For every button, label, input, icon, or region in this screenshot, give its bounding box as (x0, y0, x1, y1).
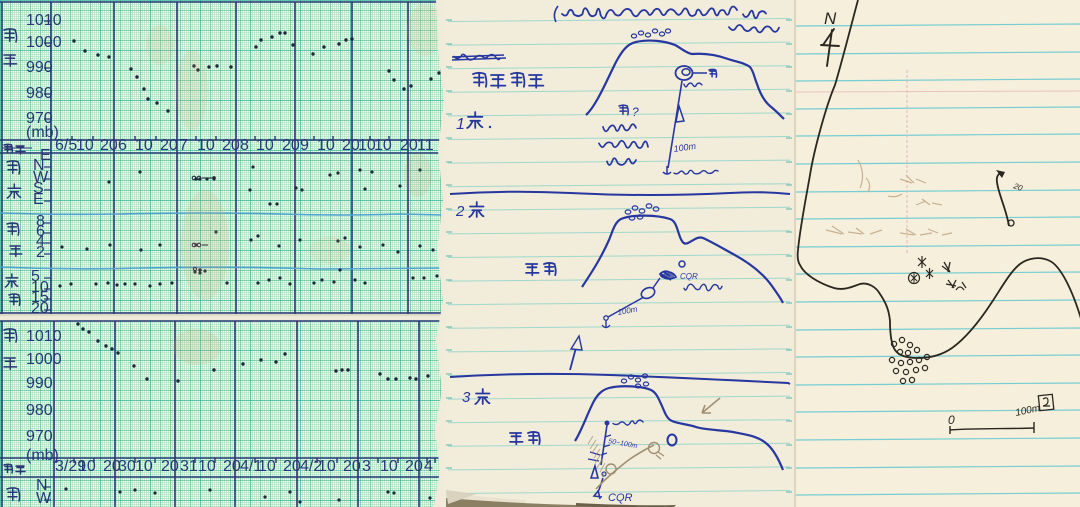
svg-text:20: 20 (343, 458, 361, 475)
svg-text:3: 3 (362, 458, 371, 475)
svg-text:(mb): (mb) (26, 124, 59, 141)
svg-text:10: 10 (198, 458, 216, 475)
svg-text:1010: 1010 (26, 328, 62, 345)
svg-text:10: 10 (318, 458, 336, 475)
svg-text:100m: 100m (673, 141, 697, 154)
svg-text:10: 10 (258, 458, 276, 475)
svg-text:10: 10 (380, 458, 398, 475)
svg-text:CQR: CQR (680, 272, 698, 281)
svg-text:E: E (33, 191, 44, 208)
svg-text:CQR: CQR (608, 492, 633, 504)
svg-text:980: 980 (26, 402, 53, 419)
svg-text:1000: 1000 (26, 351, 62, 368)
svg-text:10: 10 (135, 458, 153, 475)
svg-text:W: W (36, 490, 52, 507)
svg-text:6/5: 6/5 (55, 137, 77, 154)
svg-text:990: 990 (26, 375, 53, 392)
svg-text:20: 20 (222, 137, 240, 154)
svg-text:N: N (824, 9, 837, 28)
svg-text:9: 9 (300, 137, 309, 154)
svg-text:100m: 100m (1014, 403, 1041, 419)
svg-text:20: 20 (405, 458, 423, 475)
svg-text:100m: 100m (617, 305, 639, 317)
svg-text:970: 970 (26, 428, 53, 445)
svg-text:20: 20 (400, 137, 418, 154)
svg-text:20: 20 (223, 458, 241, 475)
svg-text:4: 4 (424, 458, 433, 475)
svg-text:10: 10 (256, 137, 274, 154)
svg-text:10: 10 (197, 137, 215, 154)
svg-text:6: 6 (118, 137, 127, 154)
svg-text:1: 1 (456, 116, 465, 133)
svg-text:2: 2 (36, 244, 45, 261)
svg-text:20: 20 (1011, 181, 1024, 193)
svg-text:10: 10 (78, 458, 96, 475)
svg-text:10: 10 (76, 137, 94, 154)
svg-text:1000: 1000 (26, 34, 62, 51)
svg-text:20: 20 (100, 137, 118, 154)
svg-text:(mb): (mb) (26, 447, 59, 464)
svg-text:20: 20 (161, 458, 179, 475)
svg-text:11: 11 (417, 137, 434, 154)
svg-text:20: 20 (31, 300, 49, 317)
svg-text:0: 0 (948, 413, 955, 427)
svg-text:10: 10 (317, 137, 335, 154)
svg-text:3: 3 (462, 389, 471, 406)
svg-text:20: 20 (160, 137, 178, 154)
svg-text:8: 8 (240, 137, 249, 154)
svg-text:7: 7 (179, 137, 188, 154)
svg-text:10: 10 (374, 137, 392, 154)
svg-text:1010: 1010 (26, 12, 62, 29)
svg-text:50~100m: 50~100m (608, 438, 638, 450)
svg-text:30: 30 (118, 458, 136, 475)
svg-text:2: 2 (455, 203, 465, 220)
svg-text:31: 31 (180, 458, 198, 475)
svg-text:10: 10 (135, 137, 153, 154)
svg-text:20: 20 (283, 458, 301, 475)
svg-text:?: ? (632, 105, 639, 119)
svg-text:E: E (40, 147, 51, 164)
svg-text:20: 20 (282, 137, 300, 154)
